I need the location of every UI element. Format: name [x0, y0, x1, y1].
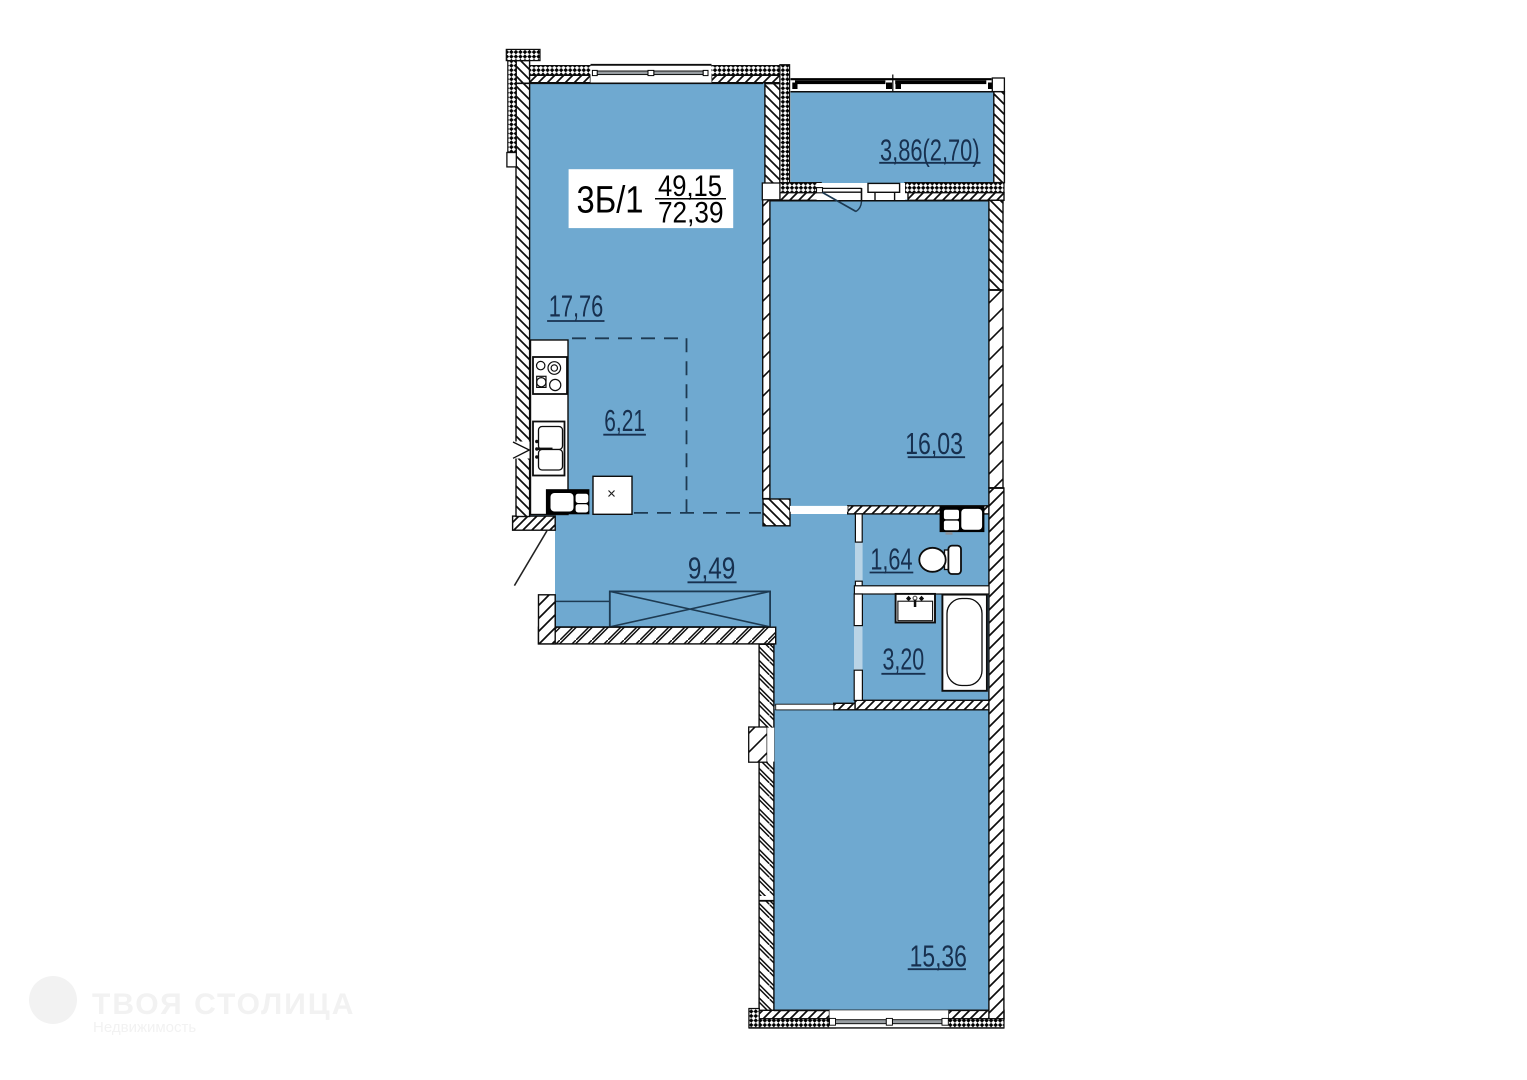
svg-text:72,39: 72,39 — [658, 197, 724, 230]
svg-text:1,64: 1,64 — [870, 542, 912, 576]
svg-text:6,21: 6,21 — [604, 404, 645, 438]
svg-text:3,20: 3,20 — [883, 643, 925, 677]
svg-text:9,49: 9,49 — [688, 551, 736, 585]
svg-text:ТВОЯ СТОЛИЦА: ТВОЯ СТОЛИЦА — [92, 988, 355, 1021]
svg-text:Недвижимость: Недвижимость — [93, 1019, 196, 1036]
svg-text:17,76: 17,76 — [549, 289, 604, 323]
svg-text:3Б/1: 3Б/1 — [577, 180, 644, 222]
svg-text:16,03: 16,03 — [905, 427, 963, 461]
